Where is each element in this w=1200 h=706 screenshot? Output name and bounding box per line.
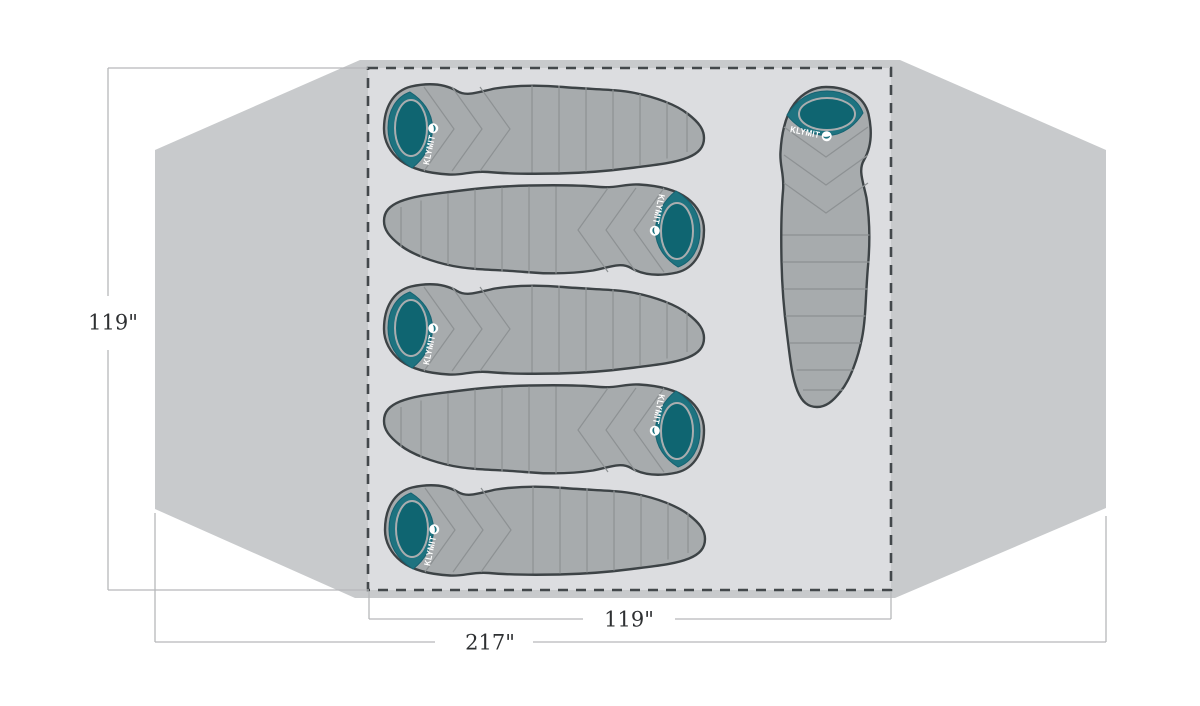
sleeping-bag-row-5 [385,485,705,575]
sleeping-bag-row-4 [384,384,704,474]
sleeping-bag-row-3 [384,284,704,374]
floor-height-label: 119" [88,311,138,335]
sleeping-bag-row-2 [384,184,704,274]
floorplan-canvas: KLYMIT 119" 119" 217" [0,0,1200,706]
tent-floorplan-diagram: KLYMIT 119" 119" 217" [0,0,1200,706]
tent-width-label: 217" [465,631,515,655]
sleeping-bag-vertical [780,87,870,407]
floor-width-label: 119" [604,608,654,632]
sleeping-bag-row-1 [384,84,704,174]
